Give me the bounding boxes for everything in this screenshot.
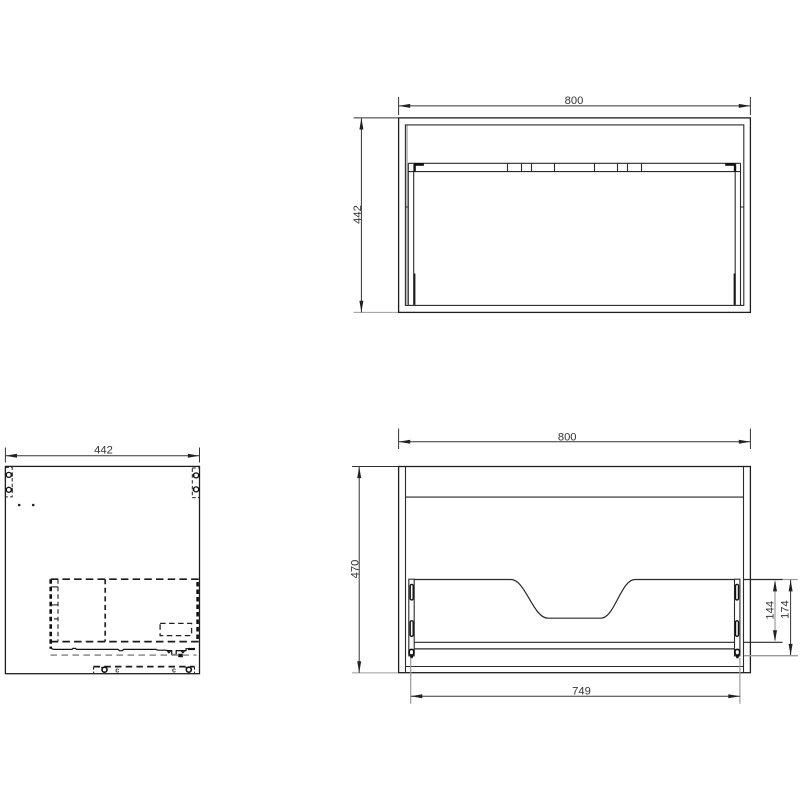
svg-text:174: 174 bbox=[780, 600, 792, 619]
svg-text:442: 442 bbox=[352, 205, 364, 224]
svg-text:800: 800 bbox=[565, 95, 584, 107]
svg-text:749: 749 bbox=[572, 685, 591, 697]
svg-text:442: 442 bbox=[94, 445, 113, 457]
svg-text:c: c bbox=[172, 666, 176, 675]
svg-text:c: c bbox=[115, 666, 119, 675]
